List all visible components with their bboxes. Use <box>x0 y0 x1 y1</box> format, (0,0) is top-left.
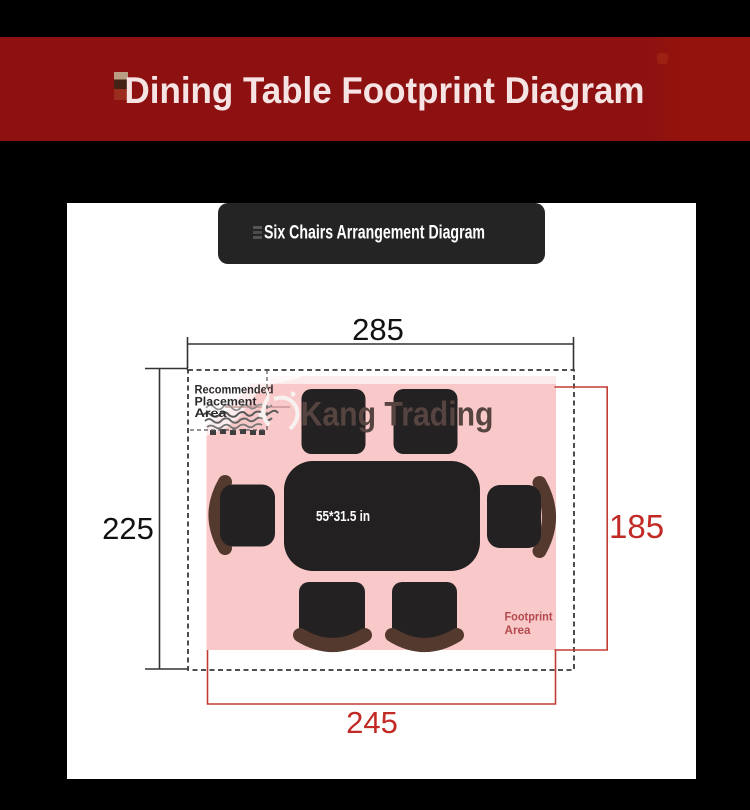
svg-text:185: 185 <box>609 508 664 545</box>
svg-text:Area: Area <box>195 406 227 420</box>
svg-text:Six Chairs Arrangement Diagram: Six Chairs Arrangement Diagram <box>264 223 485 244</box>
svg-text:55*31.5 in: 55*31.5 in <box>316 509 370 525</box>
svg-text:245: 245 <box>346 705 398 740</box>
svg-text:Area: Area <box>505 625 532 637</box>
svg-text:285: 285 <box>352 312 404 347</box>
svg-text:225: 225 <box>102 511 154 546</box>
svg-text:Kang Trading: Kang Trading <box>301 396 494 434</box>
svg-text:Footprint: Footprint <box>505 612 553 624</box>
